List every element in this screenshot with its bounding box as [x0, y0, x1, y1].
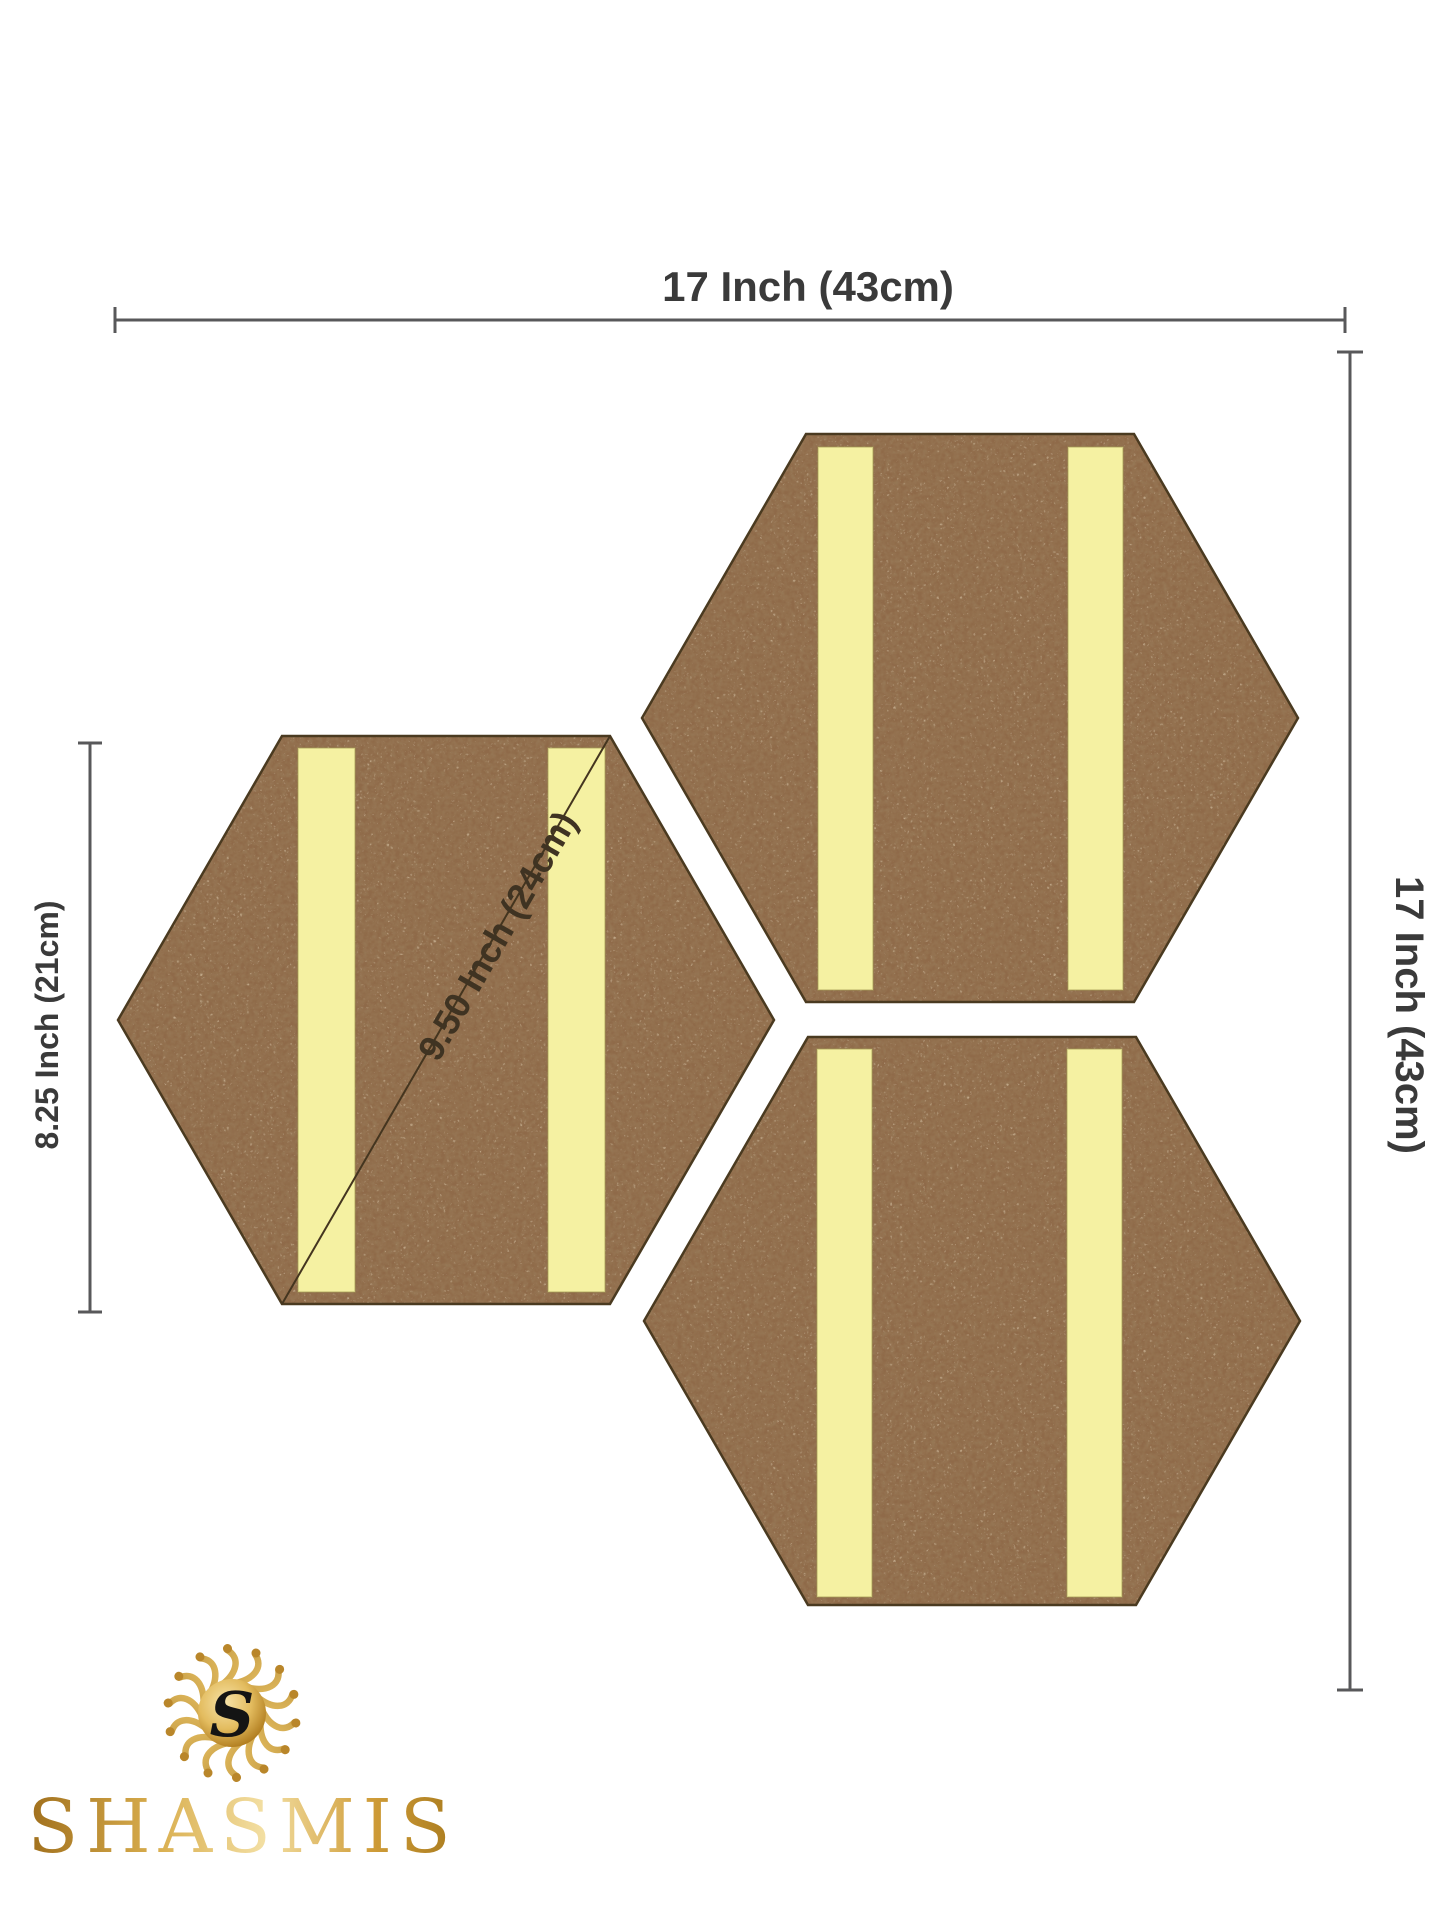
- logo-monogram: S: [210, 1678, 255, 1751]
- adhesive-strip: [1067, 1049, 1122, 1597]
- dimension-label-right: 17 Inch (43cm): [1387, 876, 1431, 1154]
- cork-surface: [642, 434, 1298, 1002]
- dimension-label-top: 17 Inch (43cm): [662, 263, 954, 310]
- adhesive-strip: [1068, 447, 1123, 990]
- cork-tile-bottom-right: [644, 1037, 1300, 1605]
- diagram-canvas: 17 Inch (43cm) 17 Inch (43cm) 8.25 Inch …: [0, 0, 1445, 1927]
- dimension-left-tile-height: 8.25 Inch (21cm): [29, 743, 102, 1312]
- adhesive-strip: [298, 748, 355, 1292]
- dimension-right-height: 17 Inch (43cm): [1337, 352, 1431, 1690]
- cork-surface: [644, 1037, 1300, 1605]
- brand-wordmark: SHASMIS: [27, 1784, 458, 1870]
- brand-logo: S SHASMIS: [27, 1643, 458, 1870]
- swirl-ring-icon: S: [163, 1643, 301, 1784]
- cork-tile-top-right: [642, 434, 1298, 1002]
- dimension-label-left: 8.25 Inch (21cm): [29, 901, 65, 1150]
- product-dimension-diagram: 17 Inch (43cm) 17 Inch (43cm) 8.25 Inch …: [0, 0, 1445, 1927]
- adhesive-strip: [818, 447, 873, 990]
- dimension-top-width: 17 Inch (43cm): [115, 263, 1345, 333]
- adhesive-strip: [817, 1049, 872, 1597]
